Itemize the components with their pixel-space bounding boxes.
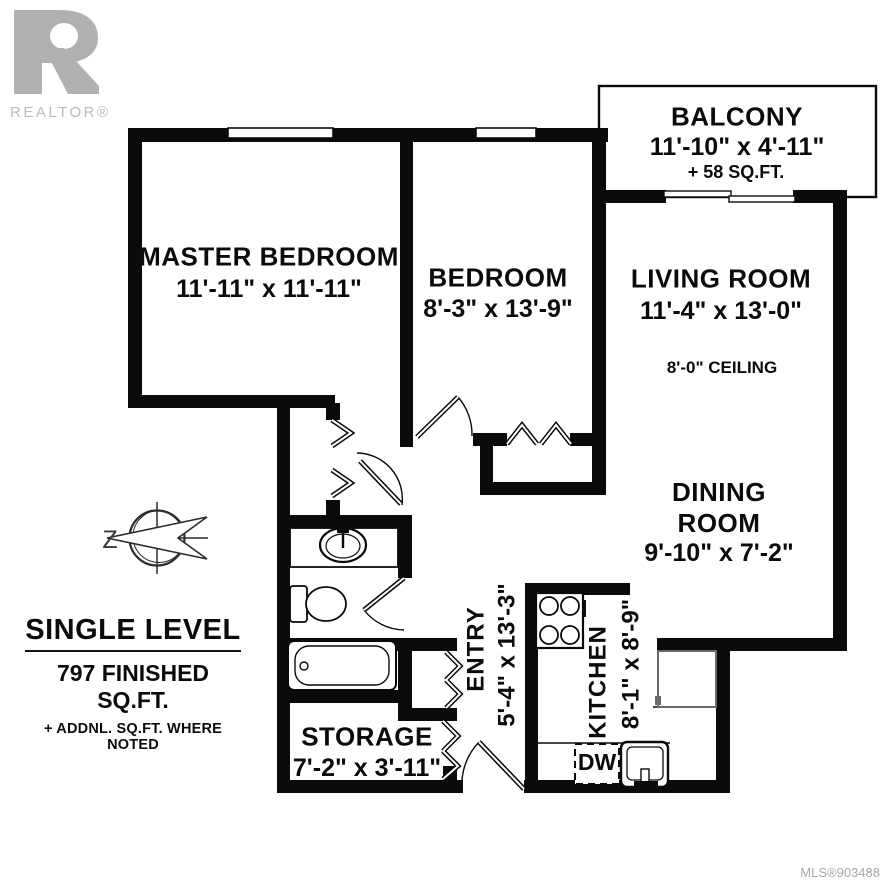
wall xyxy=(657,638,847,651)
room-label-kitchen: KITCHEN xyxy=(585,625,614,739)
room-label-entry: ENTRY xyxy=(463,606,492,691)
realtor-logo: REALTOR® xyxy=(8,6,128,121)
plan-area: 797 FINISHED SQ.FT. xyxy=(22,660,244,714)
kitchen-faucet-base xyxy=(634,781,658,789)
balcony-extra-sqft: + 58 SQ.FT. xyxy=(688,162,785,184)
room-label-balcony: BALCONY xyxy=(671,101,803,132)
wall xyxy=(128,395,335,408)
plan-summary: SINGLE LEVEL 797 FINISHED SQ.FT. + ADDNL… xyxy=(22,614,244,753)
room-dims-storage: 7'-2" x 3'-11" xyxy=(293,753,441,783)
wall xyxy=(570,433,592,446)
bathroom-door xyxy=(364,578,404,630)
wall xyxy=(592,128,606,495)
toilet-tank xyxy=(290,586,307,622)
plan-title: SINGLE LEVEL xyxy=(25,614,240,652)
mls-number: MLS®903488 xyxy=(800,865,880,880)
north-arrow-icon xyxy=(107,502,208,574)
room-dims-balcony: 11'-10" x 4'-11" xyxy=(650,132,825,162)
room-dims-dining-room: 9'-10" x 7'-2" xyxy=(644,538,794,568)
wall xyxy=(398,708,457,721)
room-label-dining-room: DINING ROOM xyxy=(632,477,807,539)
fridge-handle xyxy=(655,696,661,705)
wall xyxy=(326,403,340,420)
wall xyxy=(400,128,413,447)
wall xyxy=(480,482,606,495)
sliding-door xyxy=(664,191,731,197)
window xyxy=(476,128,536,138)
toilet-bowl xyxy=(306,587,346,621)
bathtub xyxy=(288,641,396,690)
fridge xyxy=(658,651,716,707)
coat-closet-bifold xyxy=(446,652,460,708)
wall xyxy=(716,638,730,793)
dishwasher-label: DW xyxy=(578,749,616,777)
plan-area-note: + ADDNL. SQ.FT. WHERE NOTED xyxy=(22,721,244,753)
entry-door xyxy=(462,742,524,789)
stove-handle xyxy=(582,600,586,617)
room-dims-master-bedroom: 11'-11" x 11'-11" xyxy=(176,274,362,304)
bathroom-fixtures xyxy=(288,527,398,690)
room-dims-bedroom: 8'-3" x 13'-9" xyxy=(423,294,573,324)
master-bedroom-door xyxy=(357,453,402,505)
hall-closet-bifold xyxy=(332,420,351,496)
wall xyxy=(398,515,412,578)
wall xyxy=(833,190,847,651)
compass-label: Z xyxy=(102,525,117,555)
bedroom-door xyxy=(417,397,472,437)
wall xyxy=(793,190,847,203)
room-dims-entry: 5'-4" x 13'-3" xyxy=(494,583,523,727)
room-dims-kitchen: 8'-1" x 8'-9" xyxy=(618,599,647,729)
wall xyxy=(473,433,507,446)
stove xyxy=(536,593,583,648)
floor-plan-page: BALCONY 11'-10" x 4'-11" + 58 SQ.FT. MAS… xyxy=(0,0,886,886)
realtor-wordmark: REALTOR® xyxy=(10,104,128,121)
wall xyxy=(598,190,666,203)
window xyxy=(228,128,333,138)
room-label-bedroom: BEDROOM xyxy=(428,262,567,293)
wall xyxy=(277,395,290,793)
kitchen-faucet xyxy=(641,769,649,782)
room-label-master-bedroom: MASTER BEDROOM xyxy=(139,241,399,272)
wall xyxy=(277,690,398,703)
wall xyxy=(277,515,400,528)
faucet-icon xyxy=(337,527,349,533)
room-label-living-room: LIVING ROOM xyxy=(631,263,811,294)
bedroom-closet-bifold xyxy=(507,425,571,444)
ceiling-note: 8'-0" CEILING xyxy=(667,358,777,378)
room-dims-living-room: 11'-4" x 13'-0" xyxy=(640,296,802,326)
wall xyxy=(398,651,412,708)
room-label-storage: STORAGE xyxy=(301,721,433,752)
sliding-door xyxy=(729,196,795,202)
